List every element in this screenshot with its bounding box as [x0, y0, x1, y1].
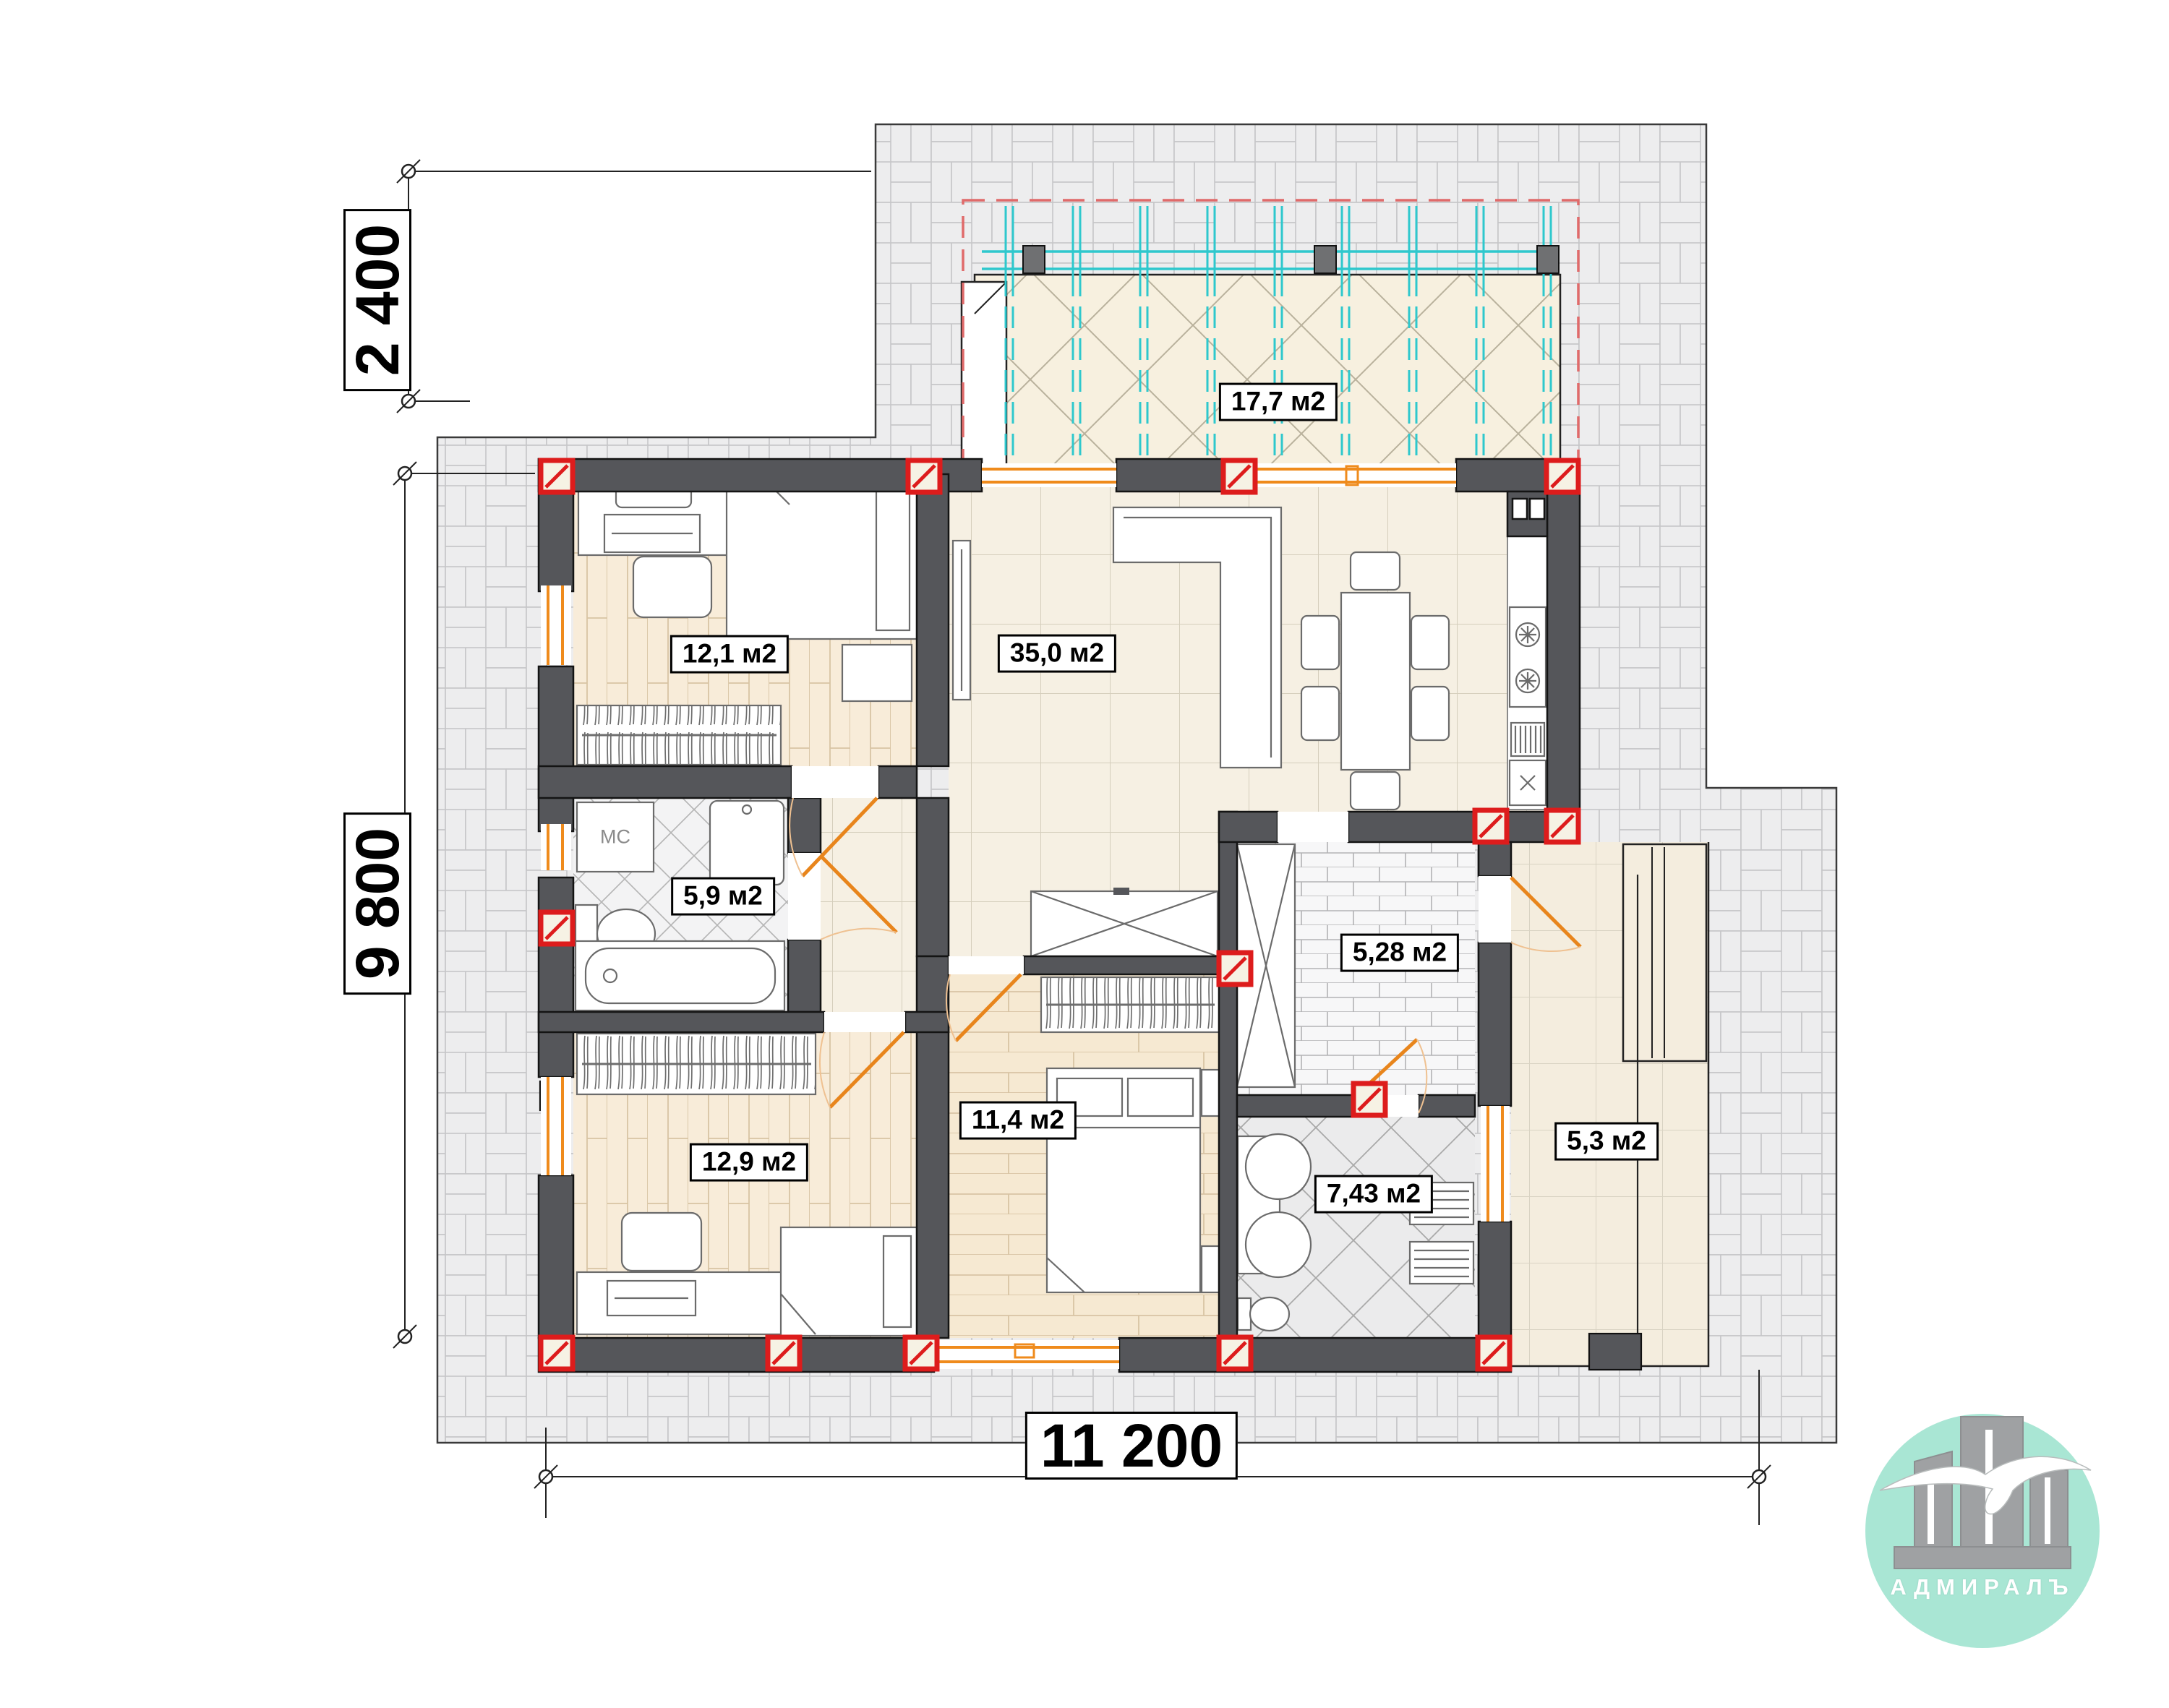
basin	[1246, 1134, 1311, 1199]
bed3-pillow	[1128, 1078, 1193, 1116]
porch-pillar	[1589, 1334, 1641, 1370]
toilet2	[1250, 1297, 1289, 1331]
terrace-column	[962, 282, 1006, 468]
chair2	[622, 1213, 701, 1271]
label-living: 35,0 м2	[998, 635, 1116, 673]
pergola-post	[1023, 246, 1045, 273]
nightstand3	[1202, 1246, 1220, 1292]
pergola-post	[1537, 246, 1559, 273]
label-bedroom2: 12,9 м2	[690, 1143, 808, 1182]
chair	[1351, 772, 1400, 810]
label-terrace: 17,7 м2	[1219, 383, 1338, 421]
label-bedroom1: 12,1 м2	[670, 635, 789, 674]
chair	[1301, 616, 1339, 669]
bed2-pillow	[884, 1236, 911, 1327]
toilet2-tank	[1238, 1298, 1251, 1330]
label-washer: МС	[600, 826, 630, 849]
label-porch: 5,3 м2	[1554, 1123, 1659, 1161]
chair1	[633, 557, 711, 617]
chair	[1411, 616, 1449, 669]
dimension-top-offset: 2 400	[343, 209, 411, 391]
chair	[1351, 552, 1400, 590]
nightstand3	[1202, 1070, 1220, 1116]
chair	[1301, 687, 1339, 740]
logo	[1865, 1414, 2100, 1648]
terrace	[962, 275, 1560, 475]
basin	[1246, 1212, 1311, 1277]
logo-brand-text: АДМИРАЛЪ	[1890, 1574, 2074, 1600]
floor-plan-page: 17,7 м2 35,0 м2 12,1 м2 5,9 м2 12,9 м2 1…	[0, 0, 2169, 1708]
dimension-bottom-total: 11 200	[1025, 1412, 1238, 1480]
dimension-left-total: 9 800	[343, 812, 411, 995]
label-bathroom1: 5,9 м2	[671, 877, 775, 916]
label-bedroom3: 11,4 м2	[959, 1102, 1077, 1140]
bed1-pillow	[876, 483, 910, 630]
pergola-post	[1314, 246, 1336, 273]
label-bathroom2: 7,43 м2	[1314, 1175, 1433, 1214]
dining-table	[1341, 593, 1410, 770]
radiator	[1410, 1242, 1473, 1284]
label-pantry: 5,28 м2	[1340, 934, 1459, 972]
nightstand1	[842, 645, 912, 701]
chair	[1411, 687, 1449, 740]
